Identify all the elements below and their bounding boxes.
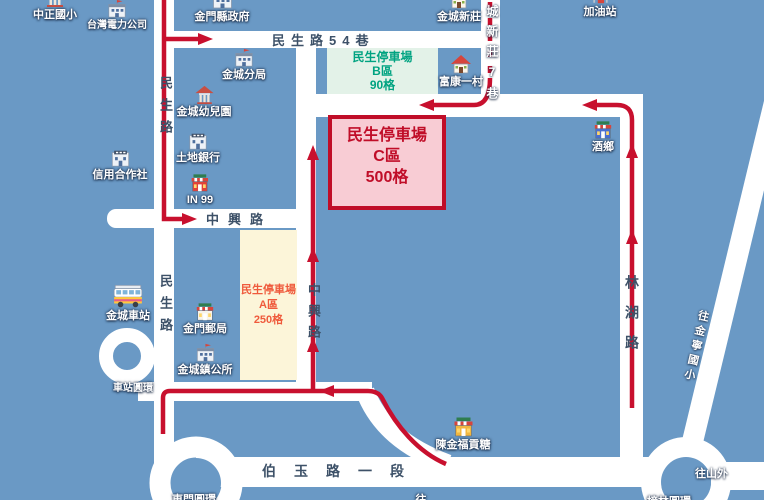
storefront-icon (451, 416, 475, 438)
poi-label: 陳金福貢糖 (436, 439, 491, 451)
road-label-linhu: 林湖路 (624, 275, 639, 365)
road-label-minsheng-lower: 民生路 (158, 274, 173, 340)
storefront-icon (194, 302, 216, 322)
police-building-icon (233, 48, 255, 68)
poi-gas-station: 加油站 (584, 0, 617, 18)
road-label-boyu-sec1: 伯玉路一段 (262, 464, 422, 479)
road-to-jinning (690, 100, 764, 452)
poi-zhongzheng-elementary: 中正國小 (33, 0, 77, 21)
parking-c-zone: C區 (332, 146, 442, 167)
poi-jincheng-kindergarten: 金城幼兒園 (177, 85, 232, 118)
poi-label: 金城車站 (106, 310, 150, 322)
poi-county-government: 金門縣政府 (195, 0, 250, 23)
poi-land-bank: 土地銀行 (176, 131, 220, 164)
poi-kinmen-post-office: 金門郵局 (183, 302, 227, 335)
roundabout-label: 東門圓環 (172, 494, 216, 500)
storefront-icon (592, 120, 614, 140)
poi-label: IN 99 (187, 194, 213, 206)
poi-label: 金門郵局 (183, 323, 227, 335)
poi-fukang-village: 富康一村 (439, 53, 483, 88)
house-icon (449, 53, 473, 75)
government-building-icon (210, 0, 234, 10)
parking-a-title: 民生停車場 (240, 283, 297, 298)
road-label-minsheng-upper: 民生路 (158, 76, 173, 142)
poi-jincheng-police-branch: 金城分局 (222, 48, 266, 81)
road-label-lane54: 民生路54巷 (272, 33, 374, 48)
poi-label: 加油站 (584, 6, 617, 18)
storefront-icon (189, 173, 211, 193)
poi-label: 金城分局 (222, 69, 266, 81)
poi-label: 土地銀行 (176, 152, 220, 164)
poi-in99: IN 99 (187, 173, 213, 206)
poi-credit-cooperative: 信用合作社 (93, 148, 148, 181)
poi-jincheng-bus-station: 金城車站 (106, 283, 150, 322)
road-label-zhongxing-v: 中興路 (306, 283, 321, 346)
poi-label: 信用合作社 (93, 169, 148, 181)
poi-label: 台灣電力公司 (87, 20, 147, 32)
parking-c-title: 民生停車場 (332, 125, 442, 146)
minsheng-parking-map: 民生路54巷 民生路 民生路 中興路 中興路 林湖路 伯玉路一段 城新莊7巷 往… (0, 0, 764, 500)
pavilion-school-icon (193, 85, 215, 105)
poi-jincheng-township-office: 金城鎮公所 (178, 343, 233, 376)
poi-label: 金城幼兒園 (177, 106, 232, 118)
parking-a-zone: A區 (240, 298, 297, 313)
roundabout-label: 榜林圓環 (647, 496, 691, 500)
poi-label: 富康一村 (439, 76, 483, 88)
school-gate-icon (43, 0, 67, 8)
poi-label: 金門縣政府 (195, 11, 250, 23)
road-label-to-shanwai: 往山外 (695, 467, 728, 482)
road-label-xinzhuang-lane7: 城新莊7巷 (484, 5, 499, 107)
station-roundabout-hole (114, 343, 141, 370)
parking-a-capacity: 250格 (240, 313, 297, 328)
poi-jincheng-xinzhuang: 金城新莊 (437, 0, 481, 23)
poi-label: 金城新莊 (437, 11, 481, 23)
partial-label: 往 (416, 494, 427, 500)
bank-building-icon (109, 148, 131, 168)
parking-lot-c-box: 民生停車場 C區 500格 (328, 115, 446, 210)
parking-b-zone: B區 (327, 64, 438, 78)
label-station-roundabout: 車站圓環 (113, 383, 153, 395)
roundabout-label: 車站圓環 (113, 383, 153, 395)
label-dongmen-roundabout: 東門圓環 (172, 494, 216, 500)
bank-building-icon (187, 131, 209, 151)
poi-label: 金城鎮公所 (178, 364, 233, 376)
poi-wine-town: 酒鄉 (592, 120, 614, 153)
parking-c-capacity: 500格 (332, 167, 442, 188)
office-building-icon (106, 0, 128, 19)
house-icon (447, 0, 471, 10)
bus-icon (112, 283, 144, 309)
poi-label: 酒鄉 (592, 141, 614, 153)
label-banglin-roundabout: 榜林圓環 (647, 496, 691, 500)
gas-pump-icon (589, 0, 611, 5)
label-partial-cutoff: 往 (416, 494, 427, 500)
parking-lot-b-box: 民生停車場 B區 90格 (327, 48, 438, 94)
parking-lot-a-box: 民生停車場 A區 250格 (240, 230, 297, 380)
poi-taipower: 台灣電力公司 (87, 0, 147, 32)
poi-label: 中正國小 (33, 9, 77, 21)
office-building-icon (194, 343, 216, 363)
parking-b-title: 民生停車場 (327, 50, 438, 64)
road-label-zhongxing-h: 中興路 (206, 212, 272, 227)
parking-b-capacity: 90格 (327, 78, 438, 92)
poi-chen-jin-fu-congtang: 陳金福貢糖 (436, 416, 491, 451)
